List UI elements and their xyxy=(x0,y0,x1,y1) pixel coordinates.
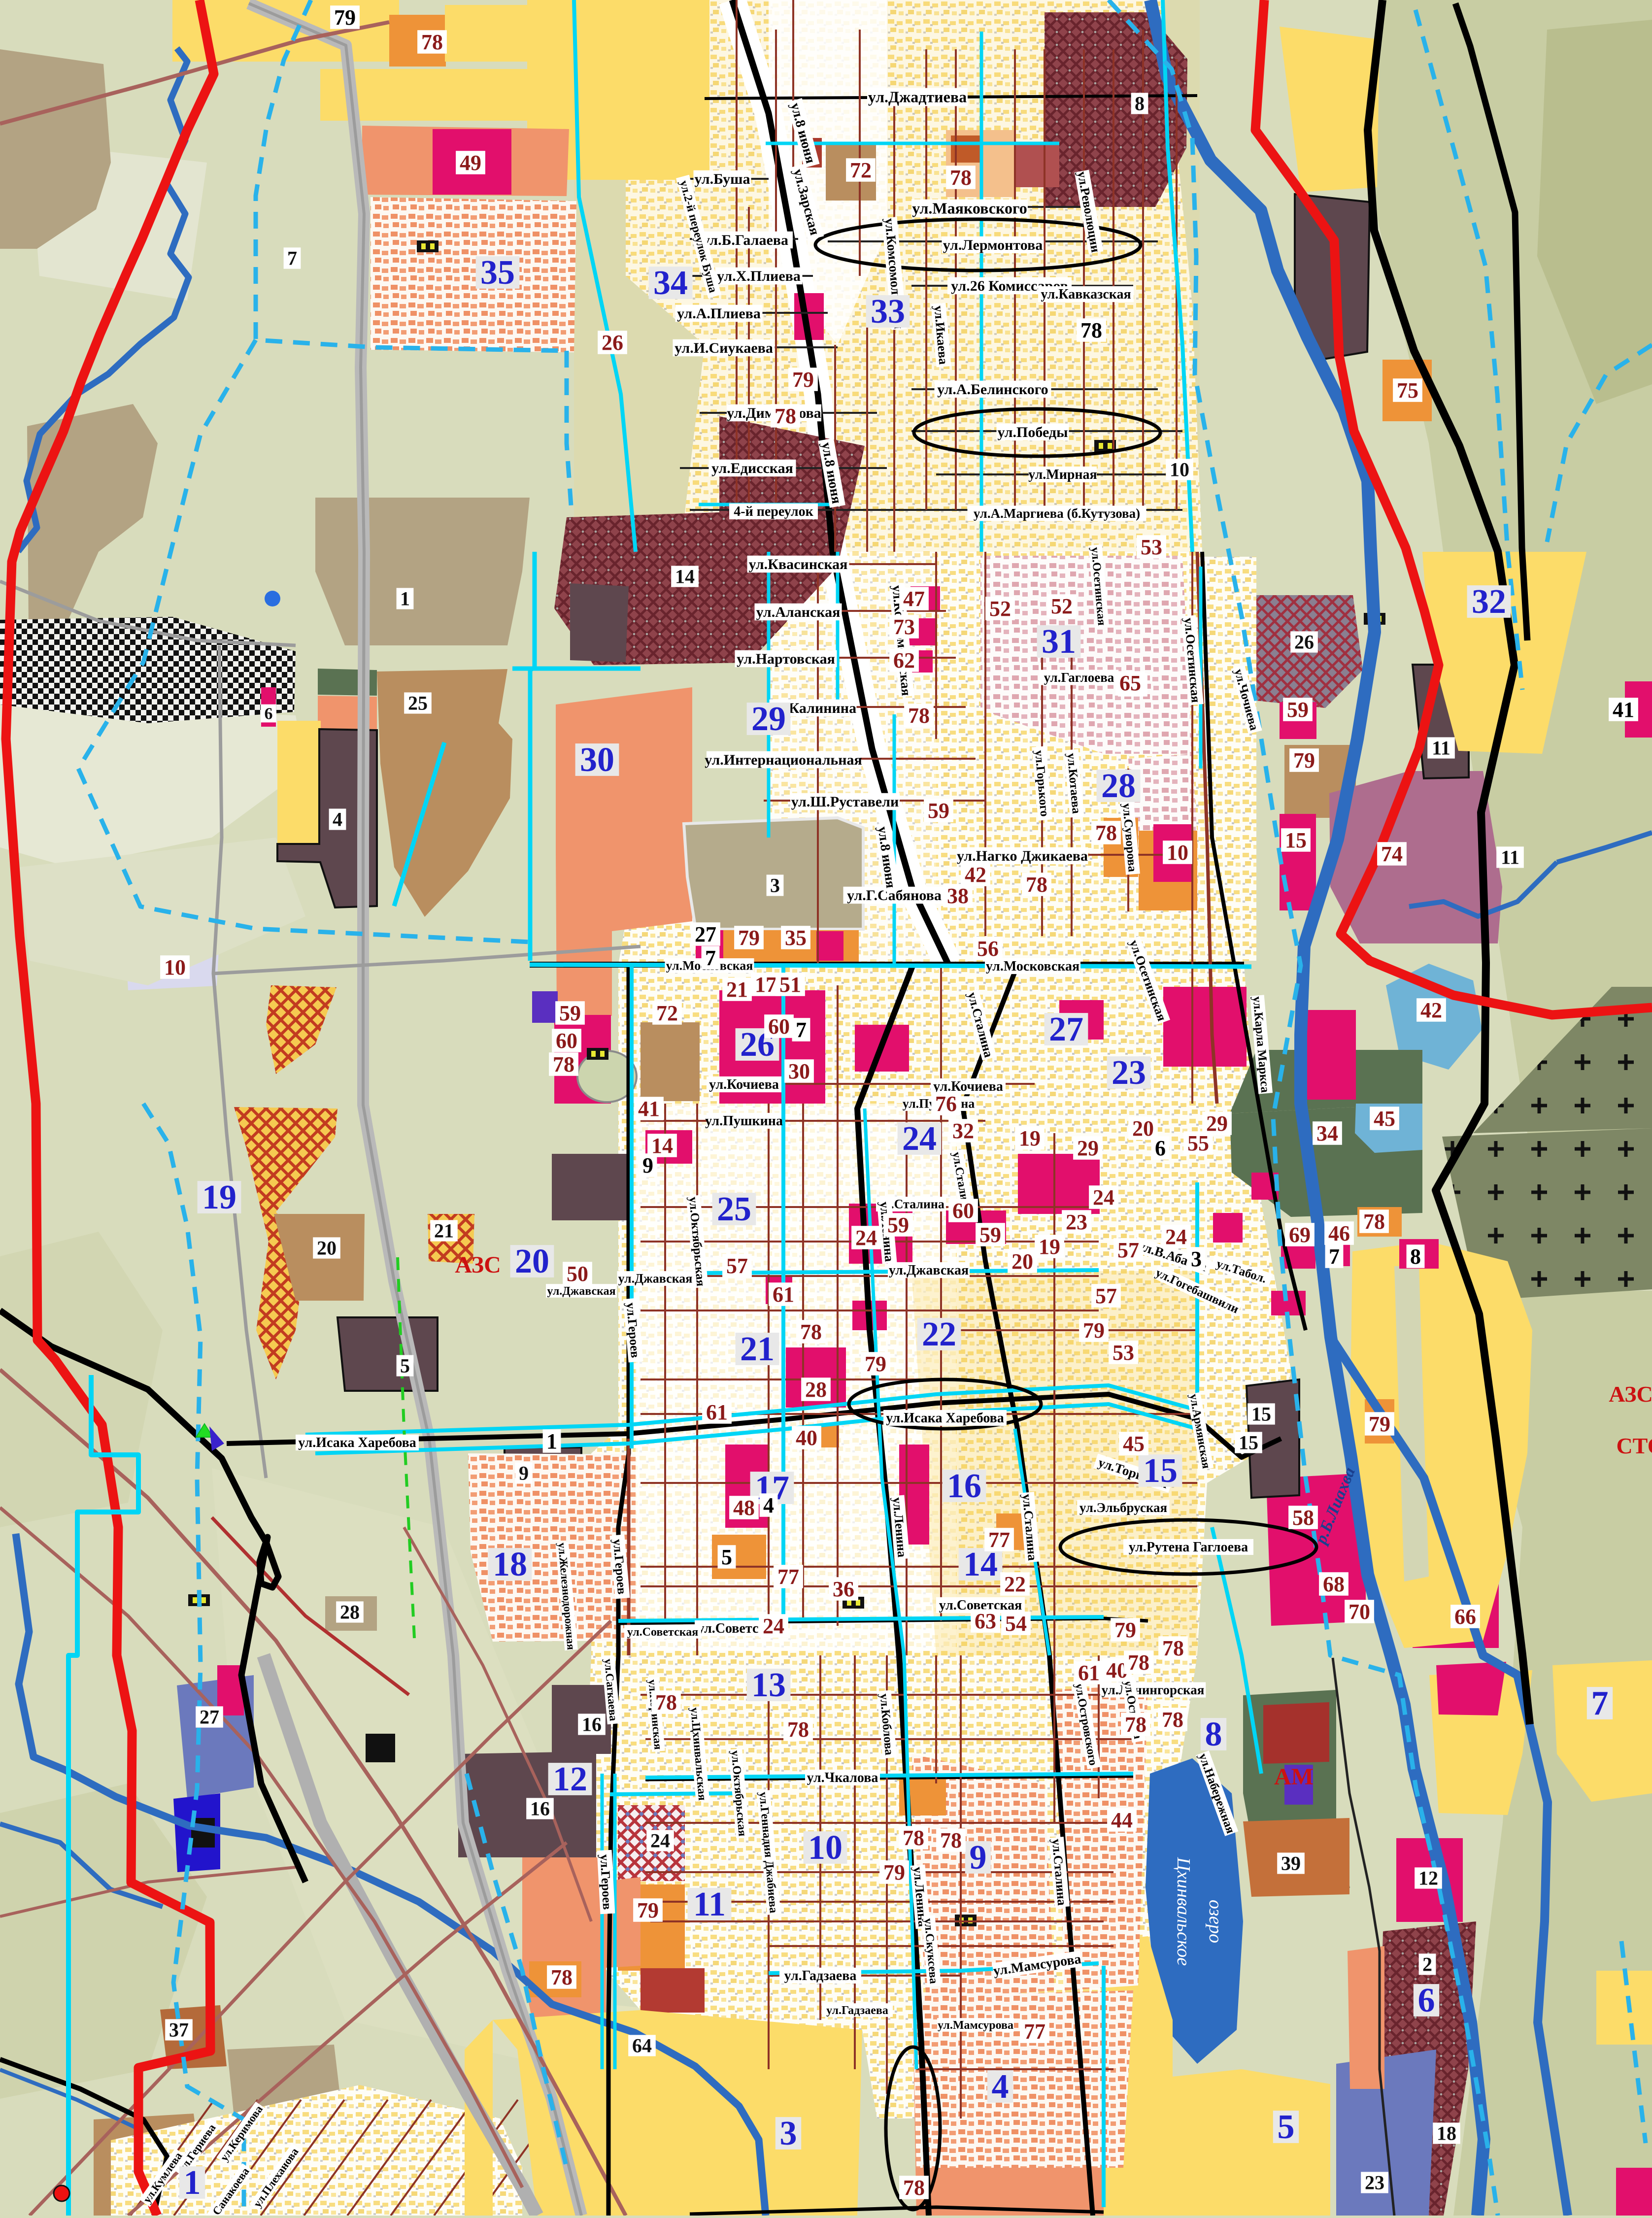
svg-text:30: 30 xyxy=(580,741,614,779)
svg-text:79: 79 xyxy=(738,926,760,950)
svg-text:4: 4 xyxy=(763,1493,774,1517)
svg-text:10: 10 xyxy=(1170,459,1189,481)
svg-text:61: 61 xyxy=(773,1282,794,1307)
svg-text:11: 11 xyxy=(693,1885,726,1923)
svg-text:АЗС: АЗС xyxy=(455,1252,501,1278)
svg-text:2: 2 xyxy=(1422,1953,1432,1976)
svg-text:72: 72 xyxy=(656,1001,678,1025)
svg-text:21: 21 xyxy=(740,1330,775,1368)
svg-text:79: 79 xyxy=(1114,1618,1136,1642)
svg-text:ул.Рутена Гаглоева: ул.Рутена Гаглоева xyxy=(1129,1540,1248,1555)
svg-text:76: 76 xyxy=(935,1092,957,1116)
svg-text:41: 41 xyxy=(638,1097,660,1121)
svg-text:48: 48 xyxy=(733,1496,755,1520)
svg-text:24: 24 xyxy=(650,1830,670,1852)
svg-text:ул.Кавказская: ул.Кавказская xyxy=(1041,287,1131,302)
svg-text:16: 16 xyxy=(530,1798,550,1820)
svg-text:59: 59 xyxy=(979,1223,1001,1247)
svg-text:35: 35 xyxy=(480,254,515,292)
svg-text:4-й переулок: 4-й переулок xyxy=(734,504,813,519)
svg-text:ул.Пушкина: ул.Пушкина xyxy=(705,1113,783,1129)
svg-text:46: 46 xyxy=(1328,1221,1350,1245)
svg-text:58: 58 xyxy=(1292,1506,1314,1530)
svg-text:79: 79 xyxy=(1293,748,1315,773)
svg-text:ул.Нартовская: ул.Нартовская xyxy=(737,651,835,667)
svg-text:78: 78 xyxy=(940,1828,962,1852)
svg-text:16: 16 xyxy=(947,1467,981,1505)
svg-text:75: 75 xyxy=(1397,378,1418,403)
svg-text:78: 78 xyxy=(1162,1636,1184,1660)
svg-text:68: 68 xyxy=(1323,1572,1345,1596)
svg-text:5: 5 xyxy=(400,1355,410,1377)
svg-text:70: 70 xyxy=(1349,1600,1370,1624)
svg-text:9: 9 xyxy=(642,1153,653,1177)
svg-text:АМ: АМ xyxy=(1274,1764,1314,1790)
svg-text:ул.Буша: ул.Буша xyxy=(695,171,750,187)
svg-text:78: 78 xyxy=(1080,318,1102,342)
svg-text:6: 6 xyxy=(265,705,273,723)
svg-text:7: 7 xyxy=(287,247,297,269)
svg-text:5: 5 xyxy=(1278,2108,1295,2146)
svg-text:65: 65 xyxy=(1119,671,1141,695)
svg-text:ул.Нагко Джикаева: ул.Нагко Джикаева xyxy=(957,848,1088,864)
svg-text:1: 1 xyxy=(546,1429,557,1453)
svg-text:60: 60 xyxy=(952,1199,974,1223)
svg-text:ул.И.Сиукаева: ул.И.Сиукаева xyxy=(674,340,773,356)
svg-text:38: 38 xyxy=(947,884,969,908)
svg-text:29: 29 xyxy=(751,700,786,738)
svg-text:ул.Аланская: ул.Аланская xyxy=(756,604,841,620)
svg-text:78: 78 xyxy=(800,1320,822,1344)
svg-text:20: 20 xyxy=(1011,1249,1033,1274)
svg-text:23: 23 xyxy=(1066,1210,1087,1234)
svg-text:14: 14 xyxy=(675,566,695,588)
svg-text:57: 57 xyxy=(1095,1284,1117,1308)
svg-text:39: 39 xyxy=(1281,1852,1301,1875)
svg-text:78: 78 xyxy=(950,166,972,190)
svg-text:34: 34 xyxy=(653,264,688,302)
svg-text:69: 69 xyxy=(1289,1223,1311,1247)
svg-text:77: 77 xyxy=(777,1565,799,1589)
svg-text:60: 60 xyxy=(556,1029,577,1053)
svg-text:ул.Джавская: ул.Джавская xyxy=(547,1285,615,1298)
svg-text:78: 78 xyxy=(553,1052,574,1076)
svg-text:77: 77 xyxy=(1024,2019,1045,2044)
svg-text:74: 74 xyxy=(1381,842,1403,866)
svg-text:78: 78 xyxy=(908,704,930,728)
svg-text:6: 6 xyxy=(1418,1982,1435,2019)
svg-text:66: 66 xyxy=(1454,1605,1476,1629)
svg-text:78: 78 xyxy=(421,30,443,54)
svg-text:15: 15 xyxy=(1239,1432,1258,1454)
svg-text:ул.Эльбруская: ул.Эльбруская xyxy=(1079,1500,1167,1515)
svg-text:25: 25 xyxy=(408,692,428,714)
svg-text:59: 59 xyxy=(928,799,949,823)
svg-text:50: 50 xyxy=(567,1262,588,1286)
svg-text:15: 15 xyxy=(1285,828,1307,852)
svg-text:13: 13 xyxy=(751,1666,786,1704)
svg-text:6: 6 xyxy=(1155,1136,1166,1160)
svg-text:78: 78 xyxy=(775,404,796,428)
svg-text:ул.Мирная: ул.Мирная xyxy=(1028,467,1097,482)
svg-text:28: 28 xyxy=(1101,767,1136,805)
svg-text:32: 32 xyxy=(952,1119,974,1143)
svg-text:41: 41 xyxy=(1613,698,1634,722)
svg-text:СТО: СТО xyxy=(1616,1433,1652,1458)
svg-text:ул.Победы: ул.Победы xyxy=(997,424,1068,440)
svg-text:23: 23 xyxy=(1365,2172,1384,2194)
svg-text:ул.Лермонтова: ул.Лермонтова xyxy=(943,237,1043,253)
svg-text:16: 16 xyxy=(582,1714,602,1736)
svg-text:3: 3 xyxy=(780,2115,797,2152)
svg-text:22: 22 xyxy=(922,1315,956,1353)
svg-text:ул.Едисская: ул.Едисская xyxy=(711,460,793,476)
svg-text:32: 32 xyxy=(1472,583,1506,621)
svg-text:24: 24 xyxy=(763,1614,784,1638)
svg-text:ул.Советская: ул.Советская xyxy=(627,1626,698,1639)
svg-text:ул.Джавская: ул.Джавская xyxy=(889,1263,969,1278)
svg-text:20: 20 xyxy=(1132,1116,1154,1141)
svg-text:3: 3 xyxy=(1191,1247,1202,1271)
svg-text:ул.Х.Плиева: ул.Х.Плиева xyxy=(717,268,801,284)
svg-text:озеро: озеро xyxy=(1205,1900,1226,1943)
svg-text:57: 57 xyxy=(1117,1238,1139,1262)
svg-text:24: 24 xyxy=(1165,1225,1187,1249)
svg-text:ул.Героев: ул.Героев xyxy=(597,1854,614,1910)
svg-text:61: 61 xyxy=(1078,1661,1100,1685)
svg-text:8: 8 xyxy=(1135,93,1145,115)
svg-text:28: 28 xyxy=(805,1378,827,1402)
svg-text:29: 29 xyxy=(1077,1136,1099,1160)
svg-text:ул.Мамсурова: ул.Мамсурова xyxy=(938,2019,1013,2032)
svg-text:52: 52 xyxy=(989,597,1011,621)
svg-text:ул.А.Плиева: ул.А.Плиева xyxy=(677,305,761,322)
svg-text:78: 78 xyxy=(1026,873,1047,897)
svg-text:10: 10 xyxy=(1167,840,1188,865)
svg-text:49: 49 xyxy=(460,151,481,175)
svg-text:9: 9 xyxy=(519,1462,529,1484)
svg-text:57: 57 xyxy=(726,1254,748,1278)
svg-text:7: 7 xyxy=(1329,1244,1340,1269)
svg-text:42: 42 xyxy=(965,863,986,887)
svg-text:78: 78 xyxy=(551,1965,573,1989)
svg-text:78: 78 xyxy=(1095,821,1117,845)
svg-text:ул.Ш.Руставели: ул.Ш.Руставели xyxy=(791,794,899,810)
svg-text:15: 15 xyxy=(1251,1403,1271,1425)
svg-text:ул.А.Белинского: ул.А.Белинского xyxy=(937,381,1048,398)
svg-text:4: 4 xyxy=(333,808,342,831)
svg-text:18: 18 xyxy=(493,1546,527,1583)
svg-text:8: 8 xyxy=(1205,1715,1222,1753)
svg-text:79: 79 xyxy=(637,1898,659,1922)
svg-text:78: 78 xyxy=(903,1826,924,1850)
svg-text:53: 53 xyxy=(1141,535,1162,559)
svg-text:73: 73 xyxy=(893,615,915,639)
svg-text:18: 18 xyxy=(1437,2122,1456,2145)
svg-text:21: 21 xyxy=(726,977,748,1002)
svg-text:ул.Гадзаева: ул.Гадзаева xyxy=(784,1968,857,1983)
svg-text:79: 79 xyxy=(1083,1318,1105,1343)
svg-text:23: 23 xyxy=(1112,1054,1146,1092)
svg-text:53: 53 xyxy=(1113,1341,1134,1365)
svg-text:АЗС: АЗС xyxy=(1609,1381,1652,1407)
svg-text:59: 59 xyxy=(1287,698,1309,722)
svg-text:79: 79 xyxy=(334,5,356,30)
svg-text:22: 22 xyxy=(1004,1572,1026,1596)
svg-text:10: 10 xyxy=(808,1829,843,1867)
svg-text:63: 63 xyxy=(975,1609,996,1633)
svg-text:ул.Джавская: ул.Джавская xyxy=(618,1272,693,1286)
svg-text:24: 24 xyxy=(902,1120,937,1158)
svg-text:45: 45 xyxy=(1123,1432,1145,1456)
svg-text:24: 24 xyxy=(855,1226,877,1250)
svg-text:26: 26 xyxy=(602,331,623,355)
svg-text:20: 20 xyxy=(515,1243,549,1280)
svg-text:8: 8 xyxy=(1410,1244,1421,1269)
svg-text:9: 9 xyxy=(970,1839,987,1877)
svg-text:ул.А.Маргиева (б.Кутузова): ул.А.Маргиева (б.Кутузова) xyxy=(974,506,1140,521)
svg-text:24: 24 xyxy=(1093,1185,1114,1210)
svg-text:15: 15 xyxy=(1143,1452,1178,1490)
svg-text:78: 78 xyxy=(1128,1650,1149,1675)
svg-text:19: 19 xyxy=(1019,1126,1041,1150)
svg-text:19: 19 xyxy=(1039,1235,1060,1259)
svg-text:78: 78 xyxy=(787,1717,809,1742)
svg-text:61: 61 xyxy=(706,1400,728,1424)
svg-text:45: 45 xyxy=(1374,1107,1395,1131)
svg-text:ул.Исака Харебова: ул.Исака Харебова xyxy=(886,1411,1004,1426)
svg-text:ул.Исака Харебова: ул.Исака Харебова xyxy=(298,1435,416,1450)
svg-text:ул.Московская: ул.Московская xyxy=(986,959,1079,974)
svg-text:3: 3 xyxy=(770,874,780,897)
svg-text:27: 27 xyxy=(200,1706,219,1728)
svg-text:54: 54 xyxy=(1005,1612,1027,1636)
svg-text:78: 78 xyxy=(655,1690,677,1714)
svg-text:79: 79 xyxy=(1369,1412,1390,1436)
svg-text:ул.Б.Галаева: ул.Б.Галаева xyxy=(703,232,788,248)
svg-text:ул.Гаглоева: ул.Гаглоева xyxy=(1044,670,1114,685)
svg-text:Цхинвальское: Цхинвальское xyxy=(1173,1857,1194,1966)
svg-text:31: 31 xyxy=(1042,623,1076,661)
svg-text:25: 25 xyxy=(717,1190,751,1228)
svg-text:51: 51 xyxy=(779,973,801,997)
svg-text:7: 7 xyxy=(1591,1684,1609,1722)
svg-text:79: 79 xyxy=(792,368,814,392)
svg-text:42: 42 xyxy=(1420,998,1442,1022)
svg-text:ул.Джадтиева: ул.Джадтиева xyxy=(868,88,967,106)
svg-text:44: 44 xyxy=(1111,1808,1133,1832)
svg-text:19: 19 xyxy=(202,1178,236,1216)
svg-text:5: 5 xyxy=(721,1545,732,1569)
svg-text:33: 33 xyxy=(871,293,905,331)
svg-text:4: 4 xyxy=(992,2068,1009,2106)
svg-text:78: 78 xyxy=(903,2176,925,2200)
svg-text:17: 17 xyxy=(755,973,776,997)
svg-text:10: 10 xyxy=(164,955,186,979)
svg-text:ул.Интернациональная: ул.Интернациональная xyxy=(705,752,862,768)
svg-text:ул.Гадзаева: ул.Гадзаева xyxy=(826,2004,888,2017)
svg-text:27: 27 xyxy=(1049,1010,1083,1048)
svg-text:11: 11 xyxy=(1432,737,1450,759)
svg-text:30: 30 xyxy=(788,1059,810,1083)
svg-text:56: 56 xyxy=(977,937,999,961)
svg-text:52: 52 xyxy=(1051,594,1073,618)
svg-text:11: 11 xyxy=(1501,846,1519,869)
svg-text:12: 12 xyxy=(1418,1867,1438,1889)
svg-text:78: 78 xyxy=(1162,1708,1183,1732)
svg-text:29: 29 xyxy=(1206,1111,1228,1136)
svg-text:ул.Кочиева: ул.Кочиева xyxy=(709,1077,779,1092)
svg-text:64: 64 xyxy=(632,2035,652,2057)
svg-text:59: 59 xyxy=(887,1213,909,1237)
svg-text:ул.Квасинская: ул.Квасинская xyxy=(749,556,848,572)
svg-text:62: 62 xyxy=(893,648,915,672)
svg-text:59: 59 xyxy=(559,1001,581,1025)
svg-text:1: 1 xyxy=(400,588,410,610)
svg-text:79: 79 xyxy=(865,1352,886,1376)
svg-text:35: 35 xyxy=(785,926,807,950)
svg-text:21: 21 xyxy=(434,1220,454,1242)
svg-text:77: 77 xyxy=(988,1528,1010,1552)
svg-text:ул.Маяковского: ул.Маяковского xyxy=(912,200,1027,217)
svg-text:47: 47 xyxy=(903,587,925,611)
svg-text:27: 27 xyxy=(695,922,716,946)
svg-text:1: 1 xyxy=(184,2164,201,2202)
svg-text:12: 12 xyxy=(553,1760,587,1798)
svg-text:79: 79 xyxy=(883,1860,905,1884)
svg-text:ул.Ленингорская: ул.Ленингорская xyxy=(1102,1682,1205,1697)
svg-text:37: 37 xyxy=(169,2019,189,2041)
svg-text:60: 60 xyxy=(768,1014,790,1039)
svg-text:34: 34 xyxy=(1316,1121,1338,1145)
svg-text:72: 72 xyxy=(850,158,872,182)
svg-text:26: 26 xyxy=(1294,631,1314,653)
svg-text:28: 28 xyxy=(340,1601,360,1623)
svg-text:7: 7 xyxy=(705,946,716,970)
svg-text:ул.Чкалова: ул.Чкалова xyxy=(807,1770,878,1785)
svg-text:78: 78 xyxy=(1125,1713,1146,1737)
svg-text:36: 36 xyxy=(833,1577,854,1601)
svg-text:20: 20 xyxy=(317,1237,337,1259)
svg-text:78: 78 xyxy=(1363,1210,1385,1234)
svg-text:40: 40 xyxy=(796,1426,817,1450)
svg-text:7: 7 xyxy=(796,1018,807,1042)
